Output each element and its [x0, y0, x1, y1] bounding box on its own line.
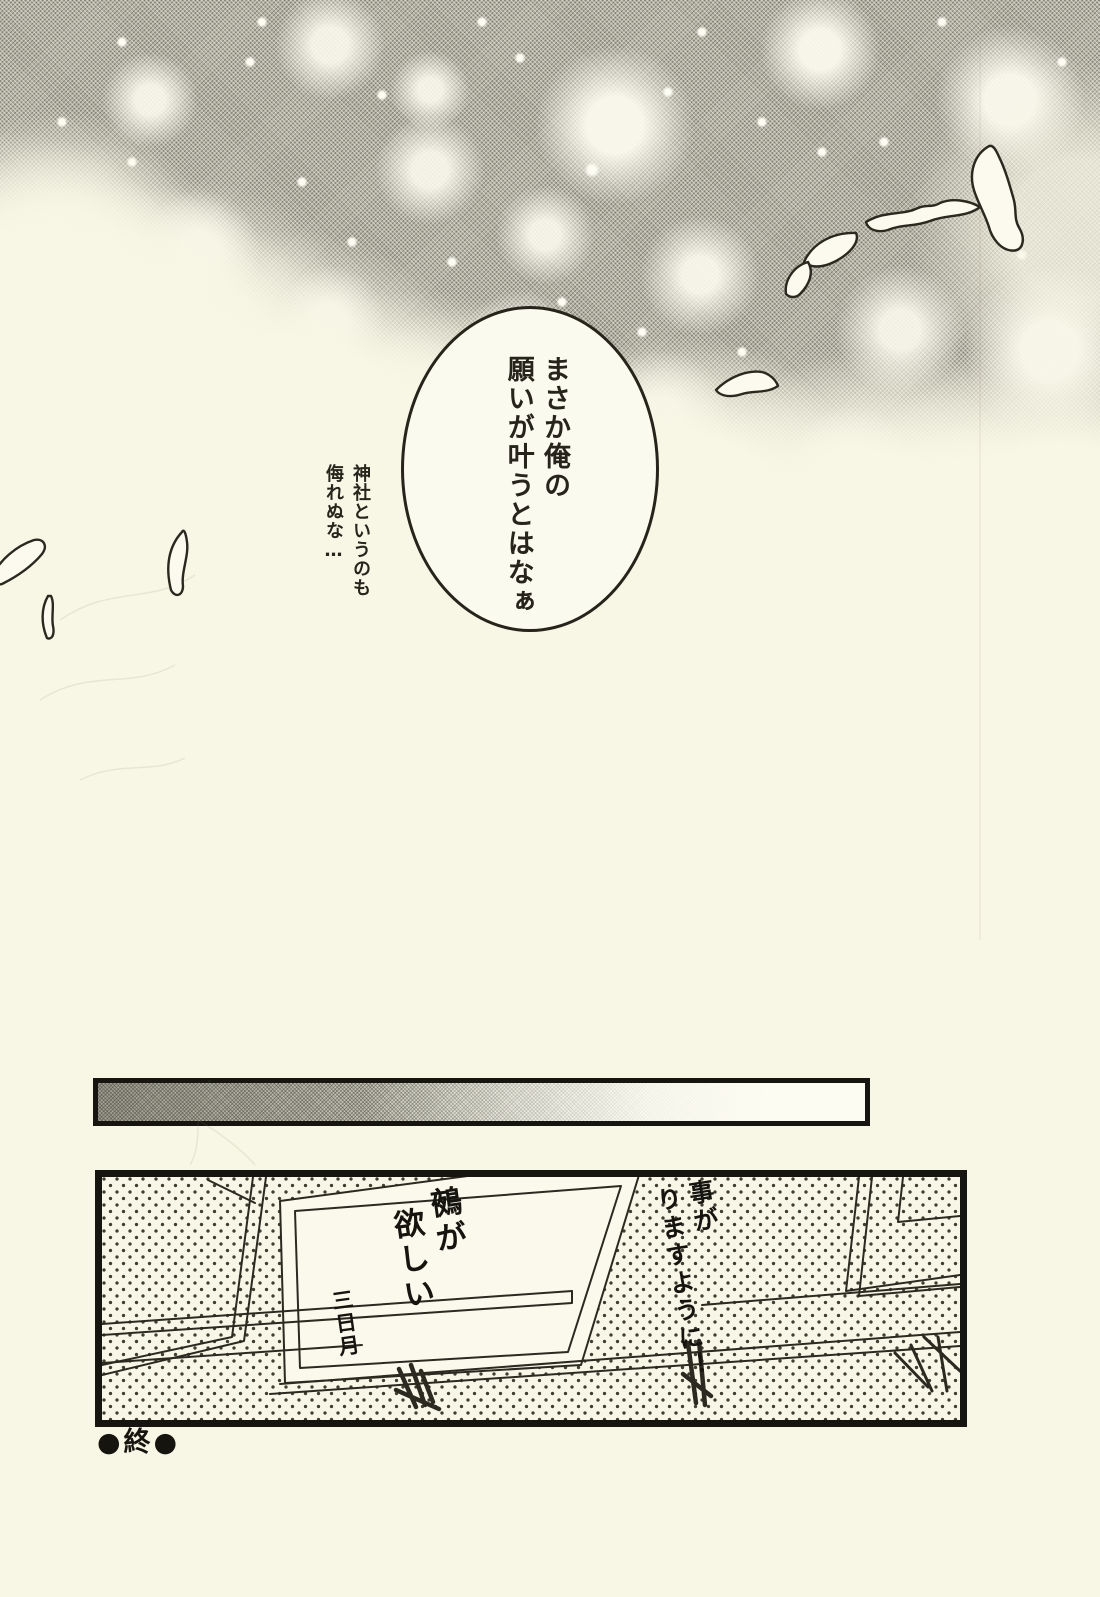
aside-text: 神社というのも 侮れぬな…	[320, 464, 374, 659]
balloon-text: まさか俺の 願いが叶うとはなぁ	[500, 355, 572, 623]
feather-icon	[862, 190, 986, 236]
feather-icon	[158, 528, 198, 602]
feather-icon	[36, 592, 60, 644]
balloon-text-line: まさか俺の	[536, 355, 572, 623]
balloon-text-line: 願いが叶うとはなぁ	[500, 355, 536, 623]
aside-text-line: 侮れぬな…	[320, 464, 347, 659]
ema-wish-text: 鵺が 欲しい	[381, 1184, 476, 1315]
ghost-sketch-lines	[0, 0, 1100, 1597]
feather-icon	[0, 532, 54, 598]
feather-icon	[778, 258, 818, 302]
feather-icon	[712, 364, 784, 402]
aside-text-line: 神社というのも	[347, 464, 374, 659]
speech-balloon: まさか俺の 願いが叶うとはなぁ	[401, 306, 659, 632]
manga-page: まさか俺の 願いが叶うとはなぁ 神社というのも 侮れぬな…	[0, 0, 1100, 1597]
